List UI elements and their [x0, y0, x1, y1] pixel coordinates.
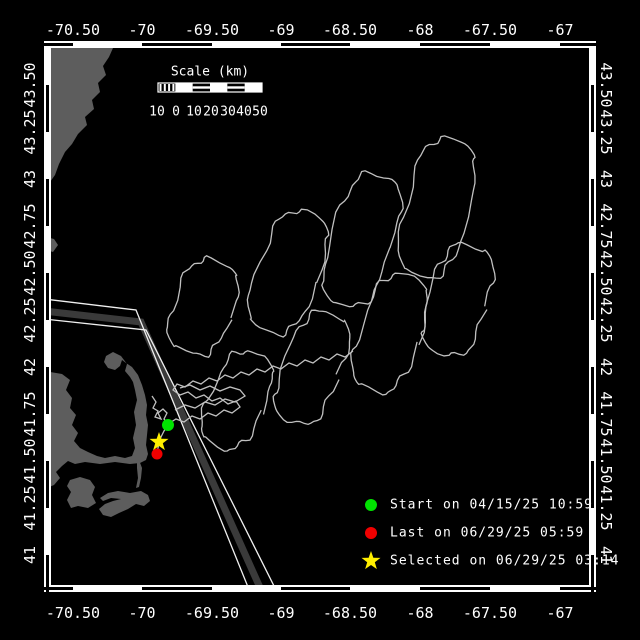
lat-tick-label-right: 41.25: [597, 485, 615, 530]
frame-tick-dash: [560, 43, 596, 46]
scale-bar: [158, 83, 262, 92]
legend-label-selected: Selected on 06/29/25 03:14: [390, 554, 620, 569]
frame-tick-dash: [142, 43, 212, 46]
selected-marker[interactable]: [149, 432, 168, 450]
frame-tick-dash: [591, 179, 594, 226]
scale-bar-number: 50: [252, 105, 268, 120]
legend-label-last: Last on 06/29/25 05:59: [390, 526, 584, 541]
land-polygon: [99, 491, 150, 517]
lat-tick-label-right: 41.75: [597, 391, 615, 436]
frame-tick-dash: [46, 461, 49, 508]
legend-start-icon: [365, 499, 377, 511]
scale-bar-number: 10: [149, 105, 165, 120]
land-polygon: [136, 460, 142, 488]
lon-tick-label-bottom: -67: [546, 604, 573, 622]
lat-tick-label-right: 43.50: [597, 62, 615, 107]
lon-tick-label-bottom: -68: [406, 604, 433, 622]
lon-tick-label-bottom: -70: [128, 604, 155, 622]
lat-tick-label-left: 42: [21, 358, 39, 376]
frame-tick-dash: [591, 273, 594, 320]
legend-last-icon: [365, 527, 377, 539]
scale-bar-solid-segment: [245, 83, 262, 92]
lon-tick-label-top: -70: [128, 21, 155, 39]
frame-tick-dash: [281, 43, 350, 46]
scale-bar-solid-segment: [175, 83, 192, 92]
lat-tick-label-left: 41: [21, 546, 39, 564]
lon-tick-label-bottom: -68.50: [323, 604, 377, 622]
lat-tick-label-right: 41.50: [597, 438, 615, 483]
scale-bar-title: Scale (km): [171, 65, 249, 80]
map-canvas: [0, 0, 640, 640]
lat-tick-label-right: 42.75: [597, 203, 615, 248]
land-polygon: [44, 41, 113, 186]
lat-tick-label-right: 42: [597, 358, 615, 376]
lon-tick-label-top: -69: [267, 21, 294, 39]
lon-tick-label-top: -68.50: [323, 21, 377, 39]
frame-tick-dash: [46, 555, 49, 592]
scale-bar-hatch: [164, 84, 166, 91]
lon-tick-label-top: -67: [546, 21, 573, 39]
lon-tick-label-top: -69.50: [185, 21, 239, 39]
frame-tick-dash: [46, 85, 49, 132]
lat-tick-label-left: 43.50: [21, 62, 39, 107]
frame-tick-dash: [420, 43, 490, 46]
frame-tick-dash: [591, 85, 594, 132]
land-polygon: [67, 477, 96, 508]
frame-tick-dash: [44, 43, 73, 46]
scale-bar-number: 20: [203, 105, 219, 120]
frame-tick-dash: [281, 587, 350, 590]
scale-bar-number: 40: [236, 105, 252, 120]
frame-tick-dash: [46, 367, 49, 414]
scale-bar-hatch: [160, 84, 162, 91]
lat-tick-label-left: 41.25: [21, 485, 39, 530]
frame-tick-dash: [142, 587, 212, 590]
lat-tick-label-left: 41.75: [21, 391, 39, 436]
frame-tick-dash: [420, 587, 490, 590]
scale-bar-number: 30: [220, 105, 236, 120]
frame-tick-dash: [46, 273, 49, 320]
lat-tick-label-right: 43.25: [597, 109, 615, 154]
land-polygon: [44, 352, 148, 489]
lat-tick-label-left: 41.50: [21, 438, 39, 483]
lon-tick-label-top: -70.50: [46, 21, 100, 39]
track-survey-loop[interactable]: [421, 242, 495, 356]
track-survey-loop[interactable]: [167, 256, 239, 357]
track-survey-loop[interactable]: [273, 310, 350, 424]
track-survey-loop[interactable]: [398, 136, 475, 278]
lon-tick-label-bottom: -67.50: [463, 604, 517, 622]
lon-tick-label-bottom: -69.50: [185, 604, 239, 622]
lon-tick-label-top: -67.50: [463, 21, 517, 39]
lat-tick-label-left: 42.75: [21, 203, 39, 248]
lat-tick-label-right: 43: [597, 170, 615, 188]
scale-bar-number: 10: [186, 105, 202, 120]
tracking-map-page: Scale (km) -70.50-70.50-70-70-69.50-69.5…: [0, 0, 640, 640]
lat-tick-label-right: 42.50: [597, 250, 615, 295]
lat-tick-label-right: 42.25: [597, 297, 615, 342]
scale-bar-hatch: [172, 84, 174, 91]
lat-tick-label-left: 42.50: [21, 250, 39, 295]
legend-selected-icon: [361, 551, 380, 569]
track-survey-loop[interactable]: [247, 209, 328, 337]
legend-label-start: Start on 04/15/25 10:59: [390, 498, 593, 513]
lon-tick-label-bottom: -69: [267, 604, 294, 622]
frame-tick-dash: [46, 179, 49, 226]
frame-tick-dash: [560, 587, 596, 590]
track-survey-loop[interactable]: [322, 171, 403, 307]
start-marker[interactable]: [162, 419, 174, 431]
lat-tick-label-left: 43.25: [21, 109, 39, 154]
last-marker[interactable]: [152, 449, 163, 460]
frame-tick-dash: [591, 367, 594, 414]
lat-tick-label-left: 43: [21, 170, 39, 188]
scale-bar-striped-segment: [227, 86, 244, 88]
track-survey-loop[interactable]: [351, 273, 428, 395]
lon-tick-label-bottom: -70.50: [46, 604, 100, 622]
lat-tick-label-left: 42.25: [21, 297, 39, 342]
scale-bar-number: 0: [172, 105, 180, 120]
scale-bar-striped-segment: [193, 86, 210, 88]
scale-bar-hatch: [168, 84, 170, 91]
scale-bar-solid-segment: [210, 83, 227, 92]
lon-tick-label-top: -68: [406, 21, 433, 39]
